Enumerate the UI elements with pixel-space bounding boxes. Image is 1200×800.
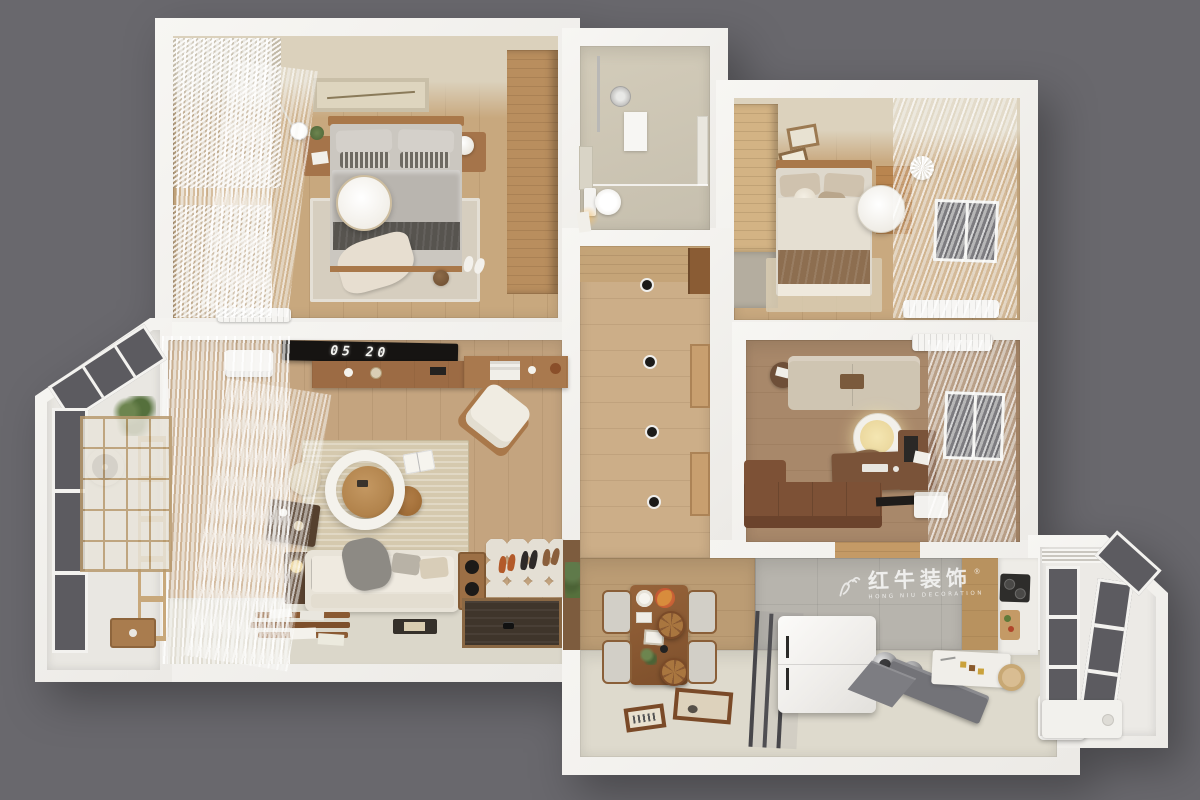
sofa-pillow-beige	[419, 557, 449, 580]
console-remote	[430, 367, 446, 375]
shower-glass-partition	[582, 184, 708, 186]
tv-clock: 05 20	[328, 344, 390, 361]
window-bar	[1049, 665, 1077, 669]
island-seam	[778, 664, 876, 665]
table-plant	[640, 648, 657, 665]
console-cup	[344, 368, 353, 377]
nightstand-plant	[310, 126, 324, 140]
shower-pipe	[597, 56, 600, 132]
tray-book	[404, 622, 425, 631]
shelf-cup	[528, 366, 536, 374]
burner-1	[1004, 579, 1015, 590]
vinyl-record-1	[465, 560, 479, 574]
frame-art-marks	[633, 712, 658, 723]
nightstand-card	[311, 151, 329, 165]
book-spine	[416, 452, 420, 472]
bedroom2-curtains	[893, 98, 1017, 318]
box-hole	[129, 629, 137, 637]
island-handle-2	[786, 668, 789, 690]
table-tray	[636, 612, 652, 623]
dining-chair-1	[602, 590, 632, 634]
cutting-board	[1000, 610, 1020, 640]
ceiling-ring-light	[325, 450, 405, 530]
entry-door-mat	[462, 598, 562, 648]
pet-ball	[433, 270, 449, 286]
shoji-partition	[80, 416, 172, 572]
window-bar	[1049, 615, 1077, 619]
hanging-plant	[565, 562, 580, 598]
sill-knob	[1102, 714, 1114, 726]
dining-chair-2	[602, 640, 632, 684]
floor-dark-tray	[393, 619, 437, 634]
bull-logo-icon	[836, 574, 863, 599]
dining-chair-3	[687, 590, 717, 634]
kitchen-counter-white	[998, 558, 1038, 655]
dining-pendant-2	[660, 658, 688, 686]
veg-green	[1004, 615, 1011, 622]
toilet-bowl	[595, 189, 621, 215]
spice-jar-1	[960, 661, 966, 667]
burner-2	[1015, 588, 1026, 599]
bathroom-window	[697, 116, 708, 186]
study-sofa-beige	[788, 356, 920, 410]
hall-door-low	[690, 452, 710, 516]
hall-door-top	[688, 248, 710, 294]
bathroom-skylight	[624, 112, 647, 151]
sofa-back-band	[744, 516, 882, 528]
toy-car	[503, 623, 514, 629]
dining-pendant-1	[657, 611, 685, 639]
right-balcony-window-col1	[1046, 566, 1080, 716]
master-wall-art	[313, 78, 429, 112]
master-wardrobe	[507, 50, 558, 294]
pizza	[655, 588, 675, 608]
tray-paper-4	[318, 633, 345, 646]
tray-paper-2	[300, 611, 324, 621]
window-bar	[1088, 669, 1118, 677]
apartment-building: 05 20	[0, 0, 1200, 800]
dinner-plate	[636, 590, 653, 607]
vinyl-record-2	[465, 582, 479, 596]
hall-spotlight-3	[645, 425, 659, 439]
sofa-back	[311, 594, 454, 608]
floorplan-render: 05 20	[0, 0, 1200, 800]
hall-spotlight-4	[647, 495, 661, 509]
spoon	[940, 657, 955, 661]
island-handle-1	[786, 636, 789, 658]
bedroom2-wardrobe	[734, 104, 778, 252]
sofa-tray	[840, 374, 864, 389]
door-rail-2	[762, 614, 773, 748]
window-bar	[114, 346, 136, 378]
art-branch	[327, 91, 415, 99]
registered-mark: ®	[973, 568, 980, 576]
spice-jar-3	[978, 668, 984, 674]
shelf-pot	[550, 363, 561, 374]
cushion-striped-right	[400, 152, 450, 168]
balcony-wood-box	[110, 618, 156, 648]
hall-spotlight-2	[643, 355, 657, 369]
bedroom2-throw	[778, 250, 870, 284]
dining-chair-4	[687, 640, 717, 684]
bath-mat	[577, 211, 592, 232]
sofa-pillow-gray	[391, 552, 422, 576]
brand-watermark: 红牛装饰 ® HONG NIU DECORATION	[836, 567, 985, 601]
master-ceiling-lamp	[336, 175, 392, 231]
pillow-right	[398, 129, 455, 153]
pillow-left	[336, 129, 393, 153]
study-sofa-brown	[744, 482, 882, 528]
floor-frame-large	[673, 688, 734, 725]
console-bowl	[370, 367, 382, 379]
kitchen-upper-cabinets	[835, 542, 920, 558]
frame-art-blob	[687, 705, 698, 714]
bedroom2-foot-band	[778, 284, 870, 296]
hall-door-mid	[690, 344, 710, 408]
desk-keyboard	[862, 464, 888, 472]
shower-head	[610, 86, 631, 107]
cooktop	[1000, 573, 1031, 602]
window-bar	[82, 366, 104, 398]
black-cup	[660, 645, 668, 653]
spice-jar-2	[969, 665, 975, 671]
veg-red	[1008, 626, 1014, 632]
balcony-sill-unit	[1042, 700, 1122, 738]
desk-mouse	[893, 466, 899, 472]
window-bar	[1094, 623, 1124, 631]
rattan-tray	[998, 664, 1025, 691]
hall-spotlight-1	[640, 278, 654, 292]
cushion-striped-left	[340, 152, 390, 168]
study-curtains	[928, 340, 1016, 542]
bathroom-vanity	[579, 146, 593, 190]
brand-name: 红牛装饰	[868, 568, 973, 593]
kitchen-island	[778, 616, 876, 713]
shelf-magazines	[490, 361, 520, 380]
